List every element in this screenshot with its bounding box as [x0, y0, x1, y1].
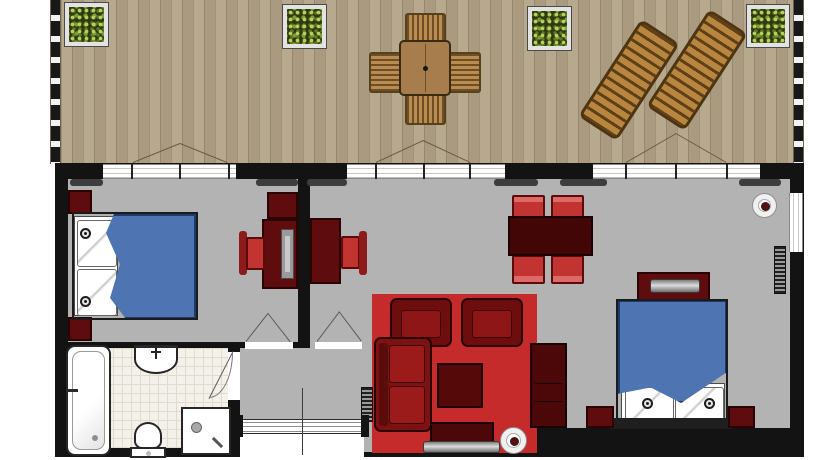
curtain	[739, 179, 781, 186]
tub-basin	[72, 351, 105, 450]
toilet-tank	[130, 447, 166, 458]
planter-box-1	[64, 2, 109, 47]
sofa-back	[379, 343, 388, 426]
shower-handle	[212, 437, 223, 448]
table-umbrella-hole	[423, 66, 428, 71]
cushion	[472, 310, 512, 338]
deck-chair-right	[448, 52, 481, 93]
deck-railing-left	[50, 0, 61, 164]
entrance-post-right	[361, 415, 369, 437]
tub-faucet	[66, 389, 78, 392]
foliage	[69, 7, 104, 42]
window-mullion	[675, 164, 677, 179]
shower	[181, 407, 231, 455]
bedside-lamp	[642, 398, 653, 409]
dresser-tv	[650, 279, 700, 293]
laptop	[281, 229, 294, 279]
bed-left-frame	[72, 212, 198, 320]
toilet-bowl	[134, 422, 162, 449]
bedroom-left-window	[103, 164, 236, 179]
curtain	[256, 179, 298, 186]
nightstand-right	[728, 406, 755, 428]
cabinet-divider	[535, 401, 562, 402]
hall-doorway-bedroom	[245, 342, 293, 349]
curtain	[70, 179, 103, 186]
bedside-lamp	[80, 296, 91, 307]
shower-drain	[191, 422, 202, 433]
ceiling-lamp	[752, 193, 777, 218]
lamp-core	[510, 437, 519, 446]
window-mullion	[131, 164, 133, 179]
deck-chair-left	[369, 52, 402, 93]
curtain	[560, 179, 607, 186]
sink-faucet-handle	[151, 351, 161, 353]
bedroom-right-window	[789, 193, 803, 252]
window-mullion	[469, 164, 471, 179]
entrance-center-line	[302, 388, 303, 455]
wall-cabinet	[267, 192, 298, 219]
radiator-bedroom-right	[774, 246, 786, 294]
deck-railing-right	[793, 0, 804, 164]
wardrobe-bottom	[68, 317, 92, 341]
desk-chair-living-back	[359, 231, 367, 275]
sink	[134, 345, 178, 374]
dining-chair-4	[551, 255, 584, 284]
dining-chair-2	[551, 195, 584, 218]
foliage	[287, 9, 322, 44]
dining-chair-3	[512, 255, 545, 284]
floor-plan	[0, 0, 840, 460]
cushion	[401, 310, 441, 338]
tv-living	[423, 441, 500, 453]
window-mullion	[726, 164, 728, 179]
foliage	[532, 11, 567, 46]
desk-living	[310, 218, 341, 284]
entrance-post-left	[235, 415, 243, 437]
window-mullion	[625, 164, 627, 179]
sofa-cushion	[389, 345, 425, 383]
sofa	[374, 337, 432, 432]
desk-chair-living	[341, 236, 360, 269]
flush-button	[146, 451, 151, 456]
cabinet-divider	[535, 383, 562, 384]
nightstand-left	[586, 406, 614, 428]
armchair-2	[461, 298, 523, 347]
window-mullion	[228, 164, 230, 179]
planter-box-4	[746, 4, 790, 48]
coffee-table	[437, 363, 483, 408]
curtain	[307, 179, 347, 186]
curtain	[494, 179, 538, 186]
foliage	[751, 9, 785, 43]
desk-chair-bedroom-left	[246, 237, 265, 270]
dining-chair-1	[512, 195, 545, 218]
tub-drain	[92, 435, 98, 441]
wardrobe-top	[68, 190, 92, 214]
bedside-lamp	[80, 228, 91, 239]
window-mullion	[375, 164, 377, 179]
dining-table	[508, 216, 593, 256]
window-mullion	[423, 164, 425, 179]
window-mullion	[179, 164, 181, 179]
deck-chair-bottom	[405, 91, 446, 125]
bathtub	[66, 345, 111, 456]
bedside-lamp	[704, 398, 715, 409]
sofa-cushion	[389, 386, 425, 424]
lamp-core	[761, 202, 770, 211]
planter-box-2	[282, 4, 327, 49]
floor-lamp	[500, 427, 527, 454]
headboard	[610, 418, 732, 429]
living-room-window-left	[347, 164, 505, 179]
planter-box-3	[527, 6, 572, 51]
deck-dining-table	[399, 40, 451, 96]
tall-cabinet	[530, 343, 567, 428]
laptop-screen	[285, 236, 290, 272]
hall-doorway-living	[315, 342, 362, 349]
